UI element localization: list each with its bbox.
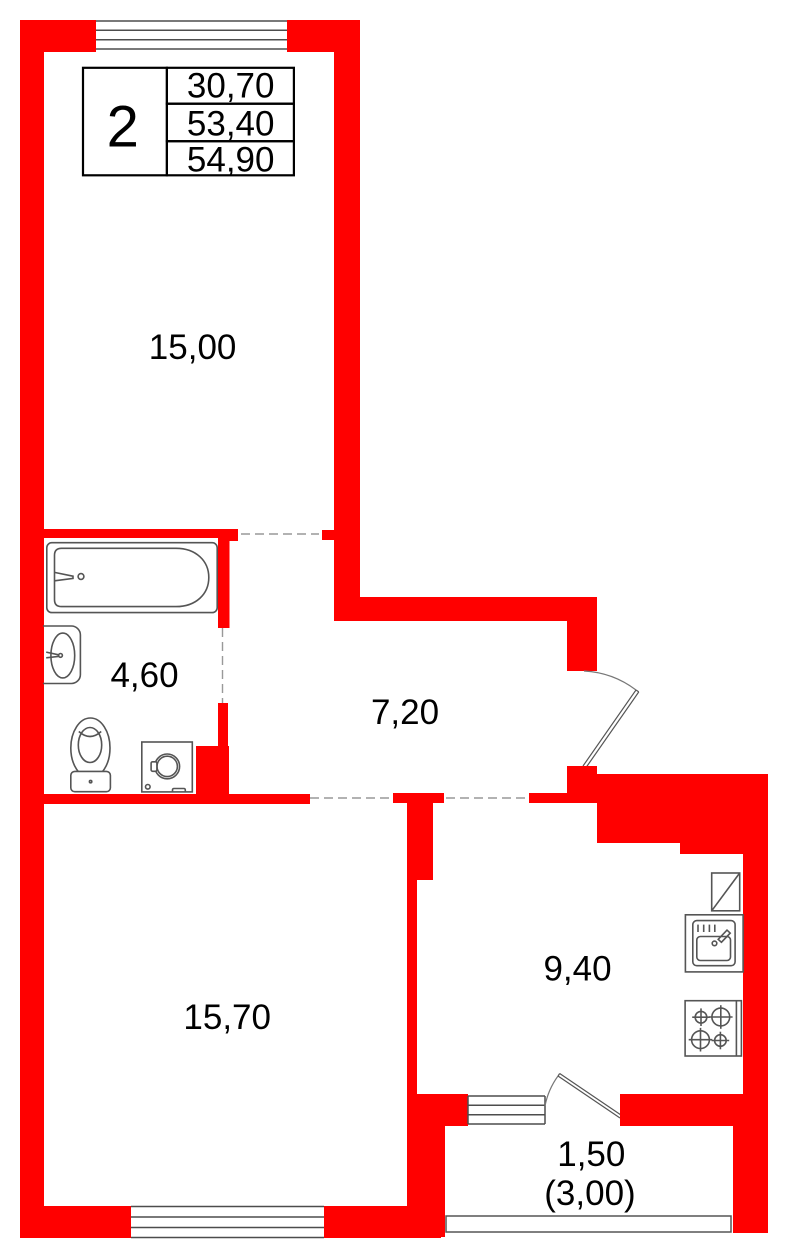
svg-text:7,20: 7,20 [371,693,439,732]
svg-text:1,50: 1,50 [557,1135,625,1174]
svg-text:53,40: 53,40 [187,105,275,144]
svg-text:9,40: 9,40 [543,950,611,989]
svg-text:15,70: 15,70 [183,998,271,1037]
svg-text:30,70: 30,70 [187,67,275,106]
svg-text:4,60: 4,60 [110,656,178,695]
svg-text:2: 2 [107,94,139,159]
svg-text:54,90: 54,90 [187,141,275,180]
svg-text:(3,00): (3,00) [544,1174,635,1213]
svg-text:15,00: 15,00 [149,328,237,367]
